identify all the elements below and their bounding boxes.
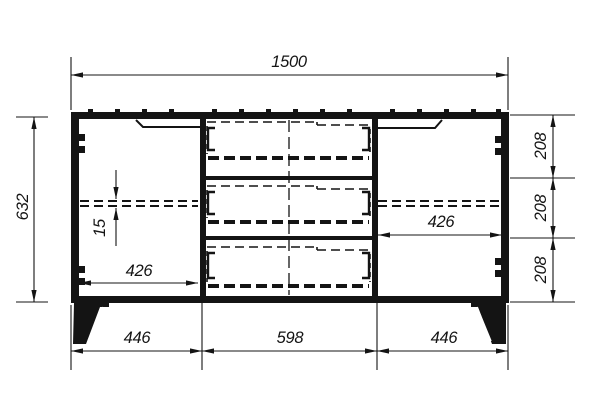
left-side-panel: [71, 119, 79, 296]
top-panel: [71, 112, 509, 119]
right-side-panel: [501, 119, 509, 296]
dim-base-right: 446: [431, 329, 459, 347]
cabinet-dimension-drawing: 1500 632 15 426 426 208 208 208 446 598 …: [0, 0, 600, 412]
dim-drawer-bottom: 208: [532, 256, 550, 285]
left-leg: [73, 303, 109, 344]
drawing-canvas: 1500 632 15 426 426 208 208 208 446 598 …: [0, 0, 600, 412]
mid-right-partition: [372, 119, 378, 296]
right-handle-recess: [378, 120, 442, 128]
dim-overall-height: 632: [14, 194, 32, 221]
left-handle-recess: [136, 120, 200, 127]
shelves-hidden-lines: [80, 201, 501, 206]
dim-drawer-top: 208: [532, 132, 550, 161]
dim-base-left: 446: [124, 329, 152, 347]
bottom-panel: [71, 296, 509, 303]
drawer-slide-left: [208, 192, 215, 214]
dim-overall-width: 1500: [271, 53, 308, 71]
drawer-slide-left: [208, 128, 215, 150]
dim-shelf-thickness: 15: [91, 218, 109, 237]
drawer-slide-left: [208, 253, 215, 278]
drawer-slide-right: [362, 192, 369, 214]
drawer-slide-right: [362, 253, 369, 278]
dim-left-opening: 426: [126, 262, 154, 280]
dim-base-mid: 598: [277, 329, 305, 347]
dim-drawer-middle: 208: [532, 194, 550, 223]
dim-right-opening: 426: [428, 213, 456, 231]
right-leg: [471, 303, 506, 344]
drawer-slide-right: [362, 128, 369, 150]
dowel-ticks: [88, 109, 501, 112]
mid-left-partition: [200, 119, 206, 296]
